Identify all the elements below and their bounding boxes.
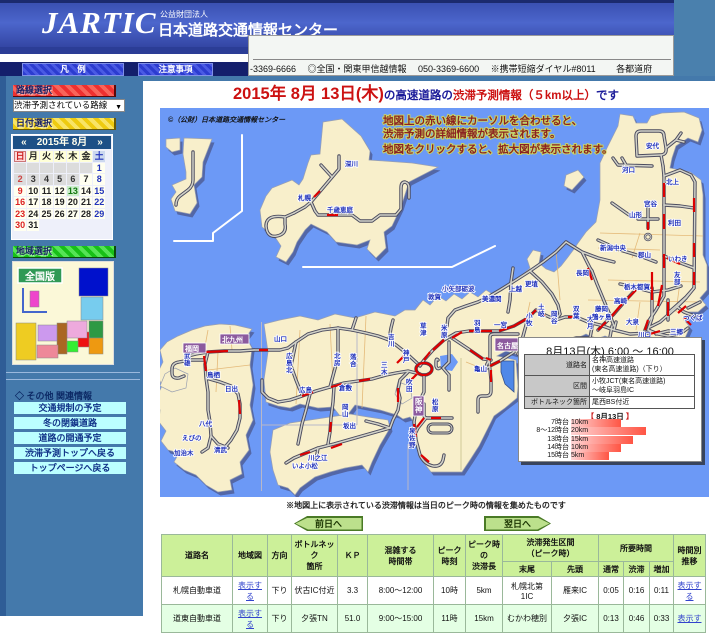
svg-text:吉川: 吉川 (387, 332, 395, 348)
svg-text:千歳恵庭: 千歳恵庭 (327, 205, 354, 214)
svg-text:神戸: 神戸 (403, 348, 410, 364)
svg-text:清武: 清武 (214, 445, 228, 454)
svg-text:山形: 山形 (629, 210, 643, 219)
svg-text:福岡: 福岡 (184, 344, 199, 353)
svg-text:大泉: 大泉 (626, 317, 640, 326)
svg-text:松原: 松原 (432, 397, 439, 413)
svg-text:上越: 上越 (509, 284, 523, 293)
svg-text:三郷: 三郷 (670, 327, 684, 336)
svg-text:川之江: 川之江 (307, 453, 328, 462)
svg-text:広島: 広島 (299, 385, 313, 394)
svg-text:加治木: 加治木 (173, 448, 194, 457)
svg-text:いよ小松: いよ小松 (292, 461, 318, 470)
svg-text:美濃関: 美濃関 (482, 294, 502, 303)
svg-text:友部: 友部 (674, 270, 681, 286)
svg-text:えびの: えびの (182, 433, 202, 442)
svg-text:新潟中央: 新潟中央 (600, 243, 627, 252)
svg-text:草津: 草津 (420, 321, 427, 337)
svg-text:宮谷: 宮谷 (644, 199, 658, 208)
svg-text:栃木都賀: 栃木都賀 (624, 282, 651, 291)
svg-text:吹田: 吹田 (406, 377, 413, 393)
svg-text:日出: 日出 (225, 384, 238, 393)
svg-text:鳥栖: 鳥栖 (207, 370, 221, 379)
svg-text:郡山: 郡山 (637, 250, 651, 259)
svg-text:北上: 北上 (666, 177, 680, 186)
svg-text:深川: 深川 (345, 159, 358, 168)
svg-text:泉佐野: 泉佐野 (408, 426, 416, 449)
svg-text:落合: 落合 (349, 352, 357, 368)
svg-text:双葉: 双葉 (572, 305, 580, 320)
svg-text:高崎: 高崎 (614, 296, 628, 305)
svg-text:八代: 八代 (198, 419, 213, 428)
svg-text:全国版: 全国版 (24, 270, 55, 283)
svg-text:大月: 大月 (586, 314, 594, 330)
svg-text:地図上の赤い線にカーソルを合わせると、: 地図上の赤い線にカーソルを合わせると、 (383, 114, 582, 127)
svg-text:利田: 利田 (668, 218, 682, 227)
svg-text:羽島: 羽島 (474, 319, 481, 334)
svg-text:米原: 米原 (441, 323, 448, 339)
svg-text:©（公財）日本道路交通情報センター: ©（公財）日本道路交通情報センター (168, 115, 286, 124)
svg-text:坂出: 坂出 (343, 421, 356, 430)
svg-text:いわき: いわき (668, 254, 688, 263)
svg-text:阪神: 阪神 (415, 396, 423, 414)
svg-text:安代: 安代 (646, 141, 660, 150)
svg-text:小牧: 小牧 (525, 311, 533, 327)
svg-text:敦賀: 敦賀 (428, 292, 442, 301)
svg-text:山口: 山口 (274, 334, 287, 343)
svg-text:地図をクリックすると、拡大図が表示されます。: 地図をクリックすると、拡大図が表示されます。 (383, 143, 613, 156)
svg-text:河口: 河口 (622, 165, 635, 174)
svg-text:三木: 三木 (380, 361, 388, 376)
svg-text:北九州: 北九州 (222, 335, 243, 344)
svg-text:倉敷: 倉敷 (338, 383, 353, 392)
svg-text:土岐: 土岐 (538, 302, 545, 318)
svg-text:小矢部砺波: 小矢部砺波 (441, 284, 475, 293)
svg-text:一宮: 一宮 (494, 320, 508, 329)
svg-text:長岡: 長岡 (576, 268, 590, 277)
svg-text:鶴ヶ島: 鶴ヶ島 (592, 312, 612, 321)
svg-text:広島北: 広島北 (286, 351, 293, 374)
svg-text:札幌: 札幌 (297, 193, 312, 202)
svg-text:更埴: 更埴 (525, 279, 539, 288)
svg-text:名古屋: 名古屋 (497, 341, 518, 350)
svg-text:岡谷: 岡谷 (551, 310, 558, 325)
svg-text:亀山: 亀山 (473, 364, 487, 373)
svg-text:藤岡: 藤岡 (594, 304, 609, 313)
svg-text:岡山: 岡山 (342, 403, 349, 418)
svg-text:北房: 北房 (334, 351, 341, 367)
svg-text:渋滞予測の詳細情報が表示されます。: 渋滞予測の詳細情報が表示されます。 (383, 127, 560, 140)
svg-text:つくば: つくば (683, 313, 703, 322)
